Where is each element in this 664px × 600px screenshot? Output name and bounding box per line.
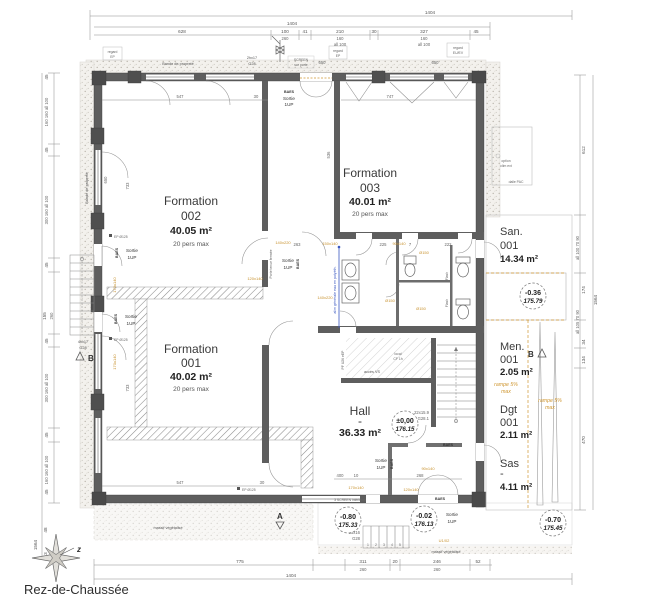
room-hall: Hall - 36.33 m² — [339, 404, 382, 439]
svg-text:BAES: BAES — [390, 458, 394, 469]
svg-text:155: 155 — [42, 312, 47, 320]
svg-text:EP Ø125: EP Ø125 — [114, 235, 128, 239]
svg-text:4.11 m²: 4.11 m² — [500, 482, 532, 493]
svg-text:2hx17: 2hx17 — [247, 56, 257, 60]
svg-text:40.02 m²: 40.02 m² — [170, 371, 213, 383]
svg-text:263: 263 — [294, 242, 302, 247]
svg-text:225: 225 — [380, 242, 388, 247]
svg-text:San.: San. — [500, 226, 523, 238]
svg-text:45: 45 — [44, 432, 49, 438]
upper-floor-hatch — [107, 287, 313, 488]
svg-text:1404: 1404 — [425, 10, 436, 15]
svg-text:170x140: 170x140 — [112, 354, 117, 370]
wc-2 — [456, 299, 470, 305]
room-labels: Formation 002 40.05 m² 20 pers max Forma… — [164, 166, 397, 439]
svg-text:52: 52 — [475, 559, 481, 564]
main-staircase — [437, 345, 476, 423]
massif-label-2: massif végétalisé — [431, 550, 460, 554]
svg-text:470: 470 — [581, 436, 586, 444]
svg-text:176.15: 176.15 — [396, 426, 415, 433]
svg-text:170x140: 170x140 — [348, 485, 364, 490]
level-hall: ±0,00 176.15 — [392, 411, 418, 437]
svg-text:EU/EV: EU/EV — [453, 51, 464, 55]
svg-text:160 160 all 100: 160 160 all 100 — [44, 97, 49, 126]
svg-text:34: 34 — [581, 339, 586, 345]
main-stair-label-1: 22x15.9 — [414, 410, 430, 415]
pf-label: PF U26 eEP — [341, 350, 345, 370]
floorplan-drawing: massif végétalisé massif végétalisé — [0, 0, 664, 600]
svg-text:G28: G28 — [248, 62, 255, 66]
svg-text:650: 650 — [432, 60, 440, 65]
svg-text:246: 246 — [433, 559, 441, 564]
svg-text:Formation: Formation — [164, 342, 218, 356]
room-dgt-001: Dgt 001 2.11 m² — [500, 404, 532, 441]
level-se: -0.70 175.45 — [540, 510, 566, 536]
svg-text:-: - — [500, 468, 504, 480]
svg-text:EP: EP — [336, 54, 341, 58]
sanitary-block: alim générale eau en polyéth. Flash Flas… — [333, 239, 470, 328]
svg-text:Ø150: Ø150 — [416, 306, 427, 311]
level-entry: -0.02 176.13 — [411, 506, 437, 532]
svg-text:160 160 all 100: 160 160 all 100 — [44, 455, 49, 484]
svg-text:5: 5 — [399, 543, 401, 547]
svg-text:±0,00: ±0,00 — [396, 418, 414, 425]
svg-text:612: 612 — [581, 146, 586, 154]
svg-text:Sortie: Sortie — [125, 314, 137, 319]
svg-text:268: 268 — [417, 473, 425, 478]
svg-text:1564: 1564 — [593, 294, 598, 305]
section-b-left: B — [88, 354, 94, 363]
svg-text:733: 733 — [125, 384, 130, 392]
svg-text:327: 327 — [420, 29, 428, 34]
svg-text:20 pers max: 20 pers max — [173, 241, 210, 248]
svg-text:001: 001 — [500, 354, 518, 366]
wc-3 — [404, 256, 416, 264]
svg-text:regard: regard — [108, 50, 118, 54]
svg-text:1UP: 1UP — [285, 102, 294, 107]
svg-text:650: 650 — [319, 60, 327, 65]
svg-text:2.05 m²: 2.05 m² — [500, 367, 533, 378]
room-formation-003: Formation 003 40.01 m² 20 pers max — [343, 166, 397, 218]
svg-text:3: 3 — [383, 543, 385, 547]
exit-center: Porte tenue fermée Sortie 1UP BAES — [269, 249, 300, 278]
svg-text:Ø150: Ø150 — [419, 250, 430, 255]
svg-text:48: 48 — [43, 527, 48, 533]
exit-west-upper: BAES Sortie 1UP — [115, 247, 138, 260]
svg-text:160: 160 — [421, 36, 429, 41]
svg-text:300 160 all 100: 300 160 all 100 — [44, 195, 49, 224]
svg-text:-0.80: -0.80 — [340, 514, 356, 521]
svg-text:all 100: all 100 — [418, 42, 431, 47]
svg-text:174: 174 — [581, 286, 586, 294]
svg-text:Porte tenue fermée: Porte tenue fermée — [269, 249, 273, 278]
flush-label-2: Flash — [445, 299, 449, 307]
svg-text:Formation: Formation — [164, 194, 218, 208]
svg-text:45: 45 — [44, 147, 49, 153]
exit-hall-south: Sortie 1UP BAES — [375, 458, 394, 470]
svg-text:002: 002 — [181, 209, 201, 223]
svg-text:747: 747 — [387, 94, 395, 99]
svg-text:400: 400 — [337, 473, 345, 478]
svg-text:2: 2 — [375, 543, 377, 547]
svg-text:BAES: BAES — [114, 313, 118, 324]
compass-rose: z — [32, 534, 81, 582]
svg-text:30: 30 — [371, 29, 377, 34]
svg-text:Sortie: Sortie — [282, 258, 294, 263]
exit-labels: BAES Sortie 1UP BAES Sortie 1UP Porte te… — [114, 90, 458, 524]
massif-label-1: massif végétalisé — [153, 526, 182, 530]
svg-text:150x140: 150x140 — [322, 241, 338, 246]
svg-text:regard: regard — [453, 46, 463, 50]
west-stair-label-1: 4hx17 — [78, 340, 88, 344]
north-label: z — [76, 545, 81, 554]
local-cf-label-1: local — [395, 352, 402, 356]
svg-text:90x140: 90x140 — [392, 241, 406, 246]
level-sw: -0.80 175.33 — [335, 507, 361, 533]
svg-text:all 100: all 100 — [334, 42, 347, 47]
section-a: A — [277, 512, 283, 521]
floorplan-page: massif végétalisé massif végétalisé — [0, 0, 664, 600]
dalle-pac-label: dalle PAC — [509, 180, 524, 184]
svg-text:all 100 70 90: all 100 70 90 — [575, 235, 580, 260]
svg-text:EP Ø125: EP Ø125 — [114, 338, 128, 342]
flush-label-1: Flash — [445, 272, 449, 280]
svg-text:260: 260 — [49, 312, 54, 320]
south-stair-label-2: G28 — [352, 536, 361, 541]
wc-1 — [456, 257, 470, 263]
bande-proprete-top: Bande de propreté — [162, 62, 193, 66]
svg-text:7: 7 — [409, 242, 412, 247]
svg-text:1404: 1404 — [287, 21, 298, 26]
svg-text:176.13: 176.13 — [415, 521, 434, 528]
ramp-label-2a: rampe 5% — [538, 398, 562, 404]
option-clim-label-1: option — [501, 159, 510, 163]
svg-text:45: 45 — [44, 489, 49, 495]
svg-text:-0.70: -0.70 — [545, 517, 561, 524]
svg-text:-0.36: -0.36 — [525, 290, 541, 297]
svg-text:1UP: 1UP — [128, 255, 137, 260]
svg-text:U1/02: U1/02 — [439, 538, 450, 543]
svg-text:733: 733 — [125, 182, 130, 190]
svg-text:-0.02: -0.02 — [416, 513, 432, 520]
svg-text:120x140: 120x140 — [403, 487, 419, 492]
svg-text:140x220: 140x220 — [317, 295, 333, 300]
ramp-label-1a: rampe 5% — [494, 382, 518, 388]
svg-text:40.05 m²: 40.05 m² — [170, 225, 213, 237]
svg-text:20 pers max: 20 pers max — [173, 386, 210, 393]
baes-hall: BAES — [443, 443, 454, 447]
svg-text:1UP: 1UP — [377, 465, 386, 470]
exit-west-lower: BAES Sortie 1UP — [114, 313, 137, 326]
local-cf-label-2: CF 1h — [393, 357, 402, 361]
svg-text:all 105 70 90: all 105 70 90 — [575, 309, 580, 334]
svg-text:20 pers max: 20 pers max — [352, 211, 389, 218]
svg-text:1UP: 1UP — [127, 321, 136, 326]
svg-text:90x140: 90x140 — [421, 466, 435, 471]
svg-text:SCREEN: SCREEN — [294, 58, 309, 62]
option-clim-label-2: clim ext — [500, 164, 512, 168]
main-stair-label-2: G28.1 — [418, 416, 430, 421]
svg-text:regard: regard — [333, 49, 343, 53]
svg-text:140x220: 140x220 — [275, 240, 291, 245]
svg-text:40.01 m²: 40.01 m² — [349, 196, 392, 208]
annex-room-labels: San. 001 14.34 m² Men. 001 2.05 m² Dgt 0… — [500, 226, 538, 493]
svg-text:120x140: 120x140 — [247, 276, 263, 281]
svg-text:536: 536 — [326, 151, 331, 159]
svg-text:45: 45 — [44, 338, 49, 344]
svg-text:001: 001 — [181, 356, 201, 370]
water-supply-label: alim générale eau en polyéth. — [333, 266, 337, 313]
svg-text:547: 547 — [177, 94, 185, 99]
west-stair-label-2: G28 — [79, 346, 86, 350]
svg-text:1UP: 1UP — [284, 265, 293, 270]
svg-text:Dgt: Dgt — [500, 404, 517, 416]
page-title: Rez-de-Chaussée — [24, 582, 129, 597]
svg-text:30: 30 — [254, 94, 259, 99]
svg-text:210: 210 — [336, 29, 344, 34]
svg-text:311: 311 — [359, 559, 367, 564]
svg-text:BAES: BAES — [115, 247, 119, 258]
ramp-label-1b: max — [501, 389, 511, 395]
room-formation-001: Formation 001 40.02 m² 20 pers max — [164, 342, 218, 393]
level-san: -0.36 175.79 — [520, 283, 546, 309]
svg-text:001: 001 — [500, 417, 518, 429]
svg-text:36.33 m²: 36.33 m² — [339, 427, 382, 439]
svg-text:628: 628 — [178, 29, 186, 34]
svg-text:100: 100 — [281, 29, 289, 34]
technical-closet: PF U26 eEP local CF 1h accès VS — [341, 338, 431, 378]
svg-text:1564: 1564 — [33, 539, 38, 550]
svg-text:45: 45 — [44, 262, 49, 268]
exit-sas: Sortie 1UP — [446, 512, 458, 524]
svg-text:-: - — [358, 414, 362, 428]
svg-text:Sortie: Sortie — [375, 458, 387, 463]
svg-text:1UP: 1UP — [448, 519, 457, 524]
svg-text:BAES: BAES — [296, 258, 300, 269]
svg-text:547: 547 — [177, 480, 185, 485]
svg-text:Formation: Formation — [343, 166, 397, 180]
svg-text:260: 260 — [360, 567, 368, 572]
svg-text:003: 003 — [360, 181, 380, 195]
acces-vs-label: accès VS — [364, 370, 381, 374]
svg-text:45: 45 — [473, 29, 479, 34]
svg-text:300 160 all 100: 300 160 all 100 — [44, 373, 49, 402]
exit-top-center: BAES Sortie 1UP — [283, 90, 295, 107]
room-sas: Sas - 4.11 m² — [500, 458, 532, 493]
svg-text:260: 260 — [434, 567, 442, 572]
svg-text:170x140: 170x140 — [112, 277, 117, 293]
svg-text:20: 20 — [392, 559, 398, 564]
svg-text:1: 1 — [367, 543, 369, 547]
svg-text:EP: EP — [110, 55, 115, 59]
svg-text:4: 4 — [391, 543, 393, 547]
svg-text:134: 134 — [581, 356, 586, 364]
svg-text:175.45: 175.45 — [544, 525, 563, 532]
svg-text:175.33: 175.33 — [339, 522, 358, 529]
svg-text:175.79: 175.79 — [524, 298, 543, 305]
svg-text:30: 30 — [260, 480, 265, 485]
svg-text:Men.: Men. — [500, 341, 524, 353]
svg-text:sur porte: sur porte — [294, 63, 307, 67]
svg-text:Sortie: Sortie — [446, 512, 458, 517]
gravel-border-texture — [80, 60, 572, 554]
svg-text:Sortie: Sortie — [283, 96, 295, 101]
section-b-right: B — [528, 350, 534, 359]
svg-text:10: 10 — [354, 473, 359, 478]
svg-text:160: 160 — [337, 36, 345, 41]
svg-text:EP Ø125: EP Ø125 — [242, 488, 256, 492]
room-san-001: San. 001 14.34 m² — [500, 226, 538, 265]
svg-text:Sortie: Sortie — [126, 248, 138, 253]
svg-text:2.11 m²: 2.11 m² — [500, 430, 532, 441]
svg-text:Ø150: Ø150 — [385, 298, 396, 303]
svg-text:650: 650 — [103, 176, 108, 184]
svg-text:775: 775 — [236, 559, 244, 564]
svg-text:001: 001 — [500, 240, 518, 252]
svg-text:BAES: BAES — [284, 90, 295, 94]
baes-sas: BAES — [435, 497, 446, 501]
room-formation-002: Formation 002 40.05 m² 20 pers max — [164, 194, 218, 248]
svg-text:45: 45 — [44, 74, 49, 80]
svg-text:260: 260 — [282, 36, 290, 41]
ramp-slope-arrow-2 — [552, 332, 558, 502]
svg-text:41: 41 — [302, 29, 308, 34]
bande-proprete-left: Bande de propreté — [85, 172, 89, 203]
ramp-label-2b: max — [545, 405, 555, 411]
svg-text:14.34 m²: 14.34 m² — [500, 254, 538, 265]
svg-text:1404: 1404 — [286, 573, 297, 578]
screen-interieur-label: 3 SCREEN intérieurs — [334, 498, 366, 502]
svg-text:222: 222 — [445, 242, 453, 247]
